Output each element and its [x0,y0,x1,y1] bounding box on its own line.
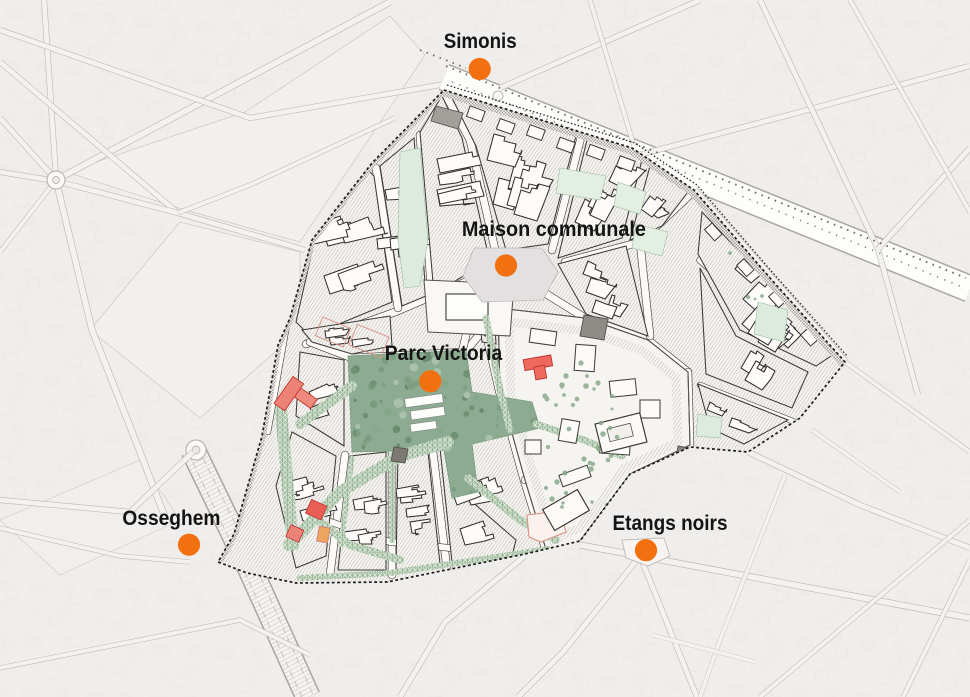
svg-text:Osseghem: Osseghem [122,506,220,530]
svg-text:Simonis: Simonis [444,29,517,53]
svg-text:Etangs noirs: Etangs noirs [613,511,728,535]
svg-text:Maison communale: Maison communale [462,217,646,241]
svg-text:Parc Victoria: Parc Victoria [385,341,503,365]
